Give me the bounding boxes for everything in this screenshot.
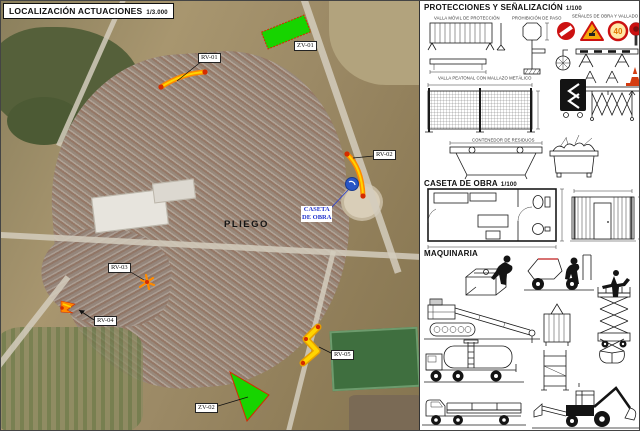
stop-paddle-sign-icon	[630, 23, 640, 46]
retroexcavadora-drawing	[532, 383, 640, 428]
panel-drawings: 40	[420, 1, 640, 431]
label-contenedor: CONTENEDOR DE RESIDUOS	[472, 138, 535, 143]
grua-orugas-drawing	[424, 299, 540, 343]
prohibicion-de-paso-drawing	[523, 23, 549, 74]
no-entry-sign-icon	[557, 22, 575, 40]
label-prohibicion: PROHIBICIÓN DE PASO	[512, 16, 561, 21]
caseta-alzado-drawing	[570, 189, 640, 241]
caseta-leader-line	[331, 190, 348, 208]
rv03-leader-line	[129, 271, 144, 280]
speed-limit-40-sign-icon: 40	[609, 22, 627, 40]
svg-text:40: 40	[614, 27, 623, 36]
label-rv03: RV-03	[108, 263, 131, 273]
protections-title: PROTECCIONES Y SEÑALIZACIÓN	[424, 3, 563, 12]
works-warning-sign-icon	[581, 22, 603, 40]
cesta-elevacion-drawing	[544, 304, 570, 346]
caseta-header: CASETA DE OBRA1/100	[424, 179, 517, 188]
rv02-street-marker	[344, 151, 365, 198]
sink-symbol	[533, 224, 551, 235]
map-title-text: LOCALIZACIÓN ACTUACIONES	[9, 6, 142, 16]
plan-sheet: LOCALIZACIÓN ACTUACIONES1/3.000 RV-01 ZV…	[0, 0, 640, 431]
maquinaria-title: MAQUINARIA	[424, 249, 478, 258]
plataforma-tijera-drawing	[598, 270, 630, 348]
aerial-map: LOCALIZACIÓN ACTUACIONES1/3.000 RV-01 ZV…	[1, 1, 420, 431]
trestle-barriers-icon	[584, 71, 618, 83]
andamio-drawing	[541, 350, 569, 390]
caseta-title: CASETA DE OBRA	[424, 179, 498, 188]
rv02-leader-line	[353, 156, 374, 158]
label-zv01: ZV-01	[294, 41, 317, 51]
caseta-scale: 1/100	[501, 182, 517, 188]
label-senales: SEÑALES DE OBRA Y VALLADO	[572, 14, 638, 19]
rv03-street-marker	[140, 275, 154, 289]
maquinaria-header: MAQUINARIA	[424, 249, 478, 258]
protections-header: PROTECCIONES Y SEÑALIZACIÓN1/100	[424, 3, 582, 12]
label-rv02: RV-02	[373, 150, 396, 160]
zv02-green-zone	[230, 372, 269, 421]
contenedor-frontal-drawing	[450, 141, 542, 179]
wheel-roller-icon	[556, 50, 570, 70]
label-rv04: RV-04	[94, 316, 117, 326]
dumper-drawing	[524, 255, 594, 290]
valla-mallazo-drawing	[425, 83, 540, 132]
map-title-block: LOCALIZACIÓN ACTUACIONES1/3.000	[3, 3, 174, 19]
barrera-tijera-drawing	[591, 91, 634, 121]
label-rv01: RV-01	[198, 53, 221, 63]
label-zv02: ZV-02	[195, 403, 218, 413]
camion-caja-drawing	[422, 400, 526, 425]
label-valla-movil: VALLA MÓVIL DE PROTECCIÓN	[434, 16, 500, 21]
rv01-street-marker	[158, 69, 207, 89]
camion-cisterna-drawing	[424, 340, 524, 382]
barrier-plank-icon	[576, 49, 638, 67]
panel-direccional-drawing	[560, 79, 586, 118]
caseta-planta-drawing	[428, 189, 564, 249]
toilet-symbol	[533, 196, 550, 209]
rv04-street-marker	[60, 301, 75, 313]
label-caseta-de-obra: CASETA DE OBRA	[301, 206, 332, 222]
map-markers-overlay	[1, 1, 420, 431]
label-rv05: RV-05	[331, 350, 354, 360]
map-scale-text: 1/3.000	[146, 10, 167, 16]
town-name-pliego: PLIEGO	[224, 219, 269, 230]
caseta-location-marker	[346, 178, 359, 191]
contenedor-escombros-drawing	[550, 135, 598, 177]
label-valla-peaton: VALLA PEATONAL CON MALLAZO METÁLICO	[438, 76, 532, 81]
traffic-cone-icon	[626, 67, 640, 86]
protections-scale: 1/100	[566, 6, 582, 12]
rv05-street-marker	[301, 325, 320, 365]
mesa-corte-drawing	[466, 256, 512, 296]
caseta-label-line2: DE OBRA	[301, 214, 332, 222]
details-panel: 40	[420, 1, 640, 431]
rv04-leader-arrow	[79, 310, 94, 320]
valla-movil-drawing	[428, 23, 505, 74]
caseta-label-line1: CASETA	[301, 206, 332, 214]
